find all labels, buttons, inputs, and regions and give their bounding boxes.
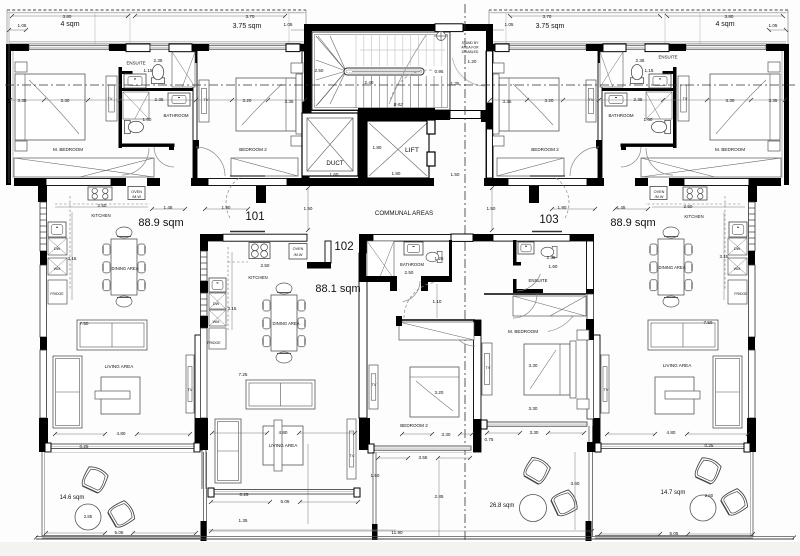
svg-text:1.50: 1.50 <box>371 473 380 478</box>
svg-text:1.20: 1.20 <box>468 59 477 64</box>
svg-text:BEDROOM 2: BEDROOM 2 <box>239 147 267 152</box>
svg-text:101: 101 <box>245 211 264 223</box>
svg-text:0.25: 0.25 <box>240 492 249 497</box>
svg-text:4 sqm: 4 sqm <box>715 21 734 28</box>
svg-text:0.25: 0.25 <box>80 444 89 449</box>
svg-text:WM: WM <box>54 267 61 271</box>
svg-text:2.50: 2.50 <box>315 68 324 73</box>
svg-text:103: 103 <box>539 214 558 226</box>
svg-text:3.75 sqm: 3.75 sqm <box>233 23 262 30</box>
svg-text:3.75 sqm: 3.75 sqm <box>536 23 565 30</box>
svg-text:LIVING AREA: LIVING AREA <box>269 443 299 448</box>
svg-text:2.50: 2.50 <box>684 204 693 209</box>
svg-text:2.35: 2.35 <box>154 58 163 63</box>
svg-text:BATHROOM: BATHROOM <box>163 113 188 118</box>
svg-text:1.60: 1.60 <box>330 172 339 177</box>
svg-text:11.90: 11.90 <box>391 530 403 535</box>
svg-text:M. BEDROOM: M. BEDROOM <box>53 147 83 152</box>
svg-text:5.05: 5.05 <box>670 531 679 536</box>
svg-text:3.35: 3.35 <box>503 99 512 104</box>
svg-text:DUCT: DUCT <box>326 160 343 167</box>
svg-text:1.05: 1.05 <box>284 22 293 27</box>
svg-text:3.35: 3.35 <box>18 98 27 103</box>
svg-text:14.7 sqm: 14.7 sqm <box>661 490 686 496</box>
svg-text:3.15: 3.15 <box>720 254 729 259</box>
svg-text:2.50: 2.50 <box>405 270 414 275</box>
svg-text:0.95: 0.95 <box>435 69 444 74</box>
svg-text:OVEN: OVEN <box>131 190 142 194</box>
svg-text:BEDROOM 2: BEDROOM 2 <box>400 423 428 428</box>
svg-text:4.80: 4.80 <box>667 430 676 435</box>
svg-text:3.15: 3.15 <box>228 306 237 311</box>
svg-text:7.50: 7.50 <box>704 320 713 325</box>
svg-text:DINING AREA: DINING AREA <box>112 266 139 271</box>
svg-text:3.20: 3.20 <box>435 390 444 395</box>
svg-text:2.85: 2.85 <box>84 514 93 519</box>
svg-text:1.15: 1.15 <box>144 68 153 73</box>
svg-text:B-02: B-02 <box>394 102 404 107</box>
svg-text:WM: WM <box>213 320 220 324</box>
svg-text:3.30: 3.30 <box>442 432 451 437</box>
svg-text:DINING AREA: DINING AREA <box>273 321 300 326</box>
svg-text:1.50: 1.50 <box>304 206 313 211</box>
svg-text:DW: DW <box>54 247 61 251</box>
svg-text:88.9 sqm: 88.9 sqm <box>610 217 655 229</box>
svg-text:TV: TV <box>683 97 688 101</box>
svg-text:LIVING AREA: LIVING AREA <box>105 364 135 369</box>
svg-text:1.45: 1.45 <box>617 205 626 210</box>
svg-text:BATHROOM: BATHROOM <box>608 113 633 118</box>
svg-text:3.30: 3.30 <box>530 430 539 435</box>
svg-text:FRIDGE: FRIDGE <box>734 292 748 296</box>
svg-text:1.35: 1.35 <box>451 81 460 86</box>
svg-text:3.20: 3.20 <box>243 98 252 103</box>
svg-text:3.80: 3.80 <box>63 14 72 19</box>
svg-text:WM: WM <box>734 267 741 271</box>
svg-text:5.05: 5.05 <box>281 499 290 504</box>
svg-text:3.70: 3.70 <box>246 14 255 19</box>
svg-text:2.35: 2.35 <box>547 255 556 260</box>
svg-text:1.05: 1.05 <box>505 22 514 27</box>
svg-text:2.35: 2.35 <box>636 58 645 63</box>
svg-text:TV: TV <box>486 366 491 370</box>
svg-text:7.25: 7.25 <box>239 372 248 377</box>
svg-text:OVEN: OVEN <box>293 247 304 251</box>
svg-text:3.30: 3.30 <box>529 363 538 368</box>
svg-text:/M.W: /M.W <box>294 253 303 257</box>
svg-text:ENSUITE: ENSUITE <box>658 55 677 60</box>
svg-text:1.05: 1.05 <box>18 23 27 28</box>
svg-text:1.60: 1.60 <box>644 117 653 122</box>
svg-text:TV: TV <box>372 383 377 387</box>
svg-text:1.50: 1.50 <box>487 206 496 211</box>
svg-text:BEDROOM 2: BEDROOM 2 <box>531 147 559 152</box>
svg-text:M. BEDROOM: M. BEDROOM <box>508 329 538 334</box>
svg-text:2.60: 2.60 <box>705 493 714 498</box>
svg-text:1.05: 1.05 <box>769 23 778 28</box>
svg-text:KITCHEN: KITCHEN <box>91 213 110 218</box>
svg-text:M. BEDROOM: M. BEDROOM <box>715 147 745 152</box>
svg-text:OVEN: OVEN <box>654 190 665 194</box>
svg-text:1.50: 1.50 <box>451 172 460 177</box>
svg-text:LIVING AREA: LIVING AREA <box>663 363 693 368</box>
svg-text:DW: DW <box>213 302 220 306</box>
svg-text:KITCHEN: KITCHEN <box>248 275 267 280</box>
svg-text:4.80: 4.80 <box>117 431 126 436</box>
svg-text:1.35: 1.35 <box>239 518 248 523</box>
svg-text:FRIDGE: FRIDGE <box>207 341 221 345</box>
svg-text:/M.W: /M.W <box>655 195 664 199</box>
svg-text:1.45: 1.45 <box>164 205 173 210</box>
svg-text:7.50: 7.50 <box>80 321 89 326</box>
svg-text:BATHROOM: BATHROOM <box>400 262 424 267</box>
svg-text:88.9 sqm: 88.9 sqm <box>138 217 183 229</box>
svg-text:2.50: 2.50 <box>261 263 270 268</box>
svg-text:LIFT: LIFT <box>405 147 419 154</box>
svg-text:3.15: 3.15 <box>68 256 77 261</box>
svg-text:ENSUITE: ENSUITE <box>126 61 145 66</box>
svg-text:3.70: 3.70 <box>543 14 552 19</box>
svg-text:3.30: 3.30 <box>61 98 70 103</box>
svg-text:1.80: 1.80 <box>373 145 382 150</box>
svg-text:1.90: 1.90 <box>558 205 567 210</box>
svg-text:1.90: 1.90 <box>222 205 231 210</box>
svg-text:DW: DW <box>734 247 741 251</box>
svg-text:COMMUNAL AREAS: COMMUNAL AREAS <box>375 210 433 217</box>
svg-text:3.30: 3.30 <box>726 98 735 103</box>
svg-text:DINING AREA: DINING AREA <box>659 265 686 270</box>
svg-text:2.40: 2.40 <box>365 80 374 85</box>
svg-text:1.25: 1.25 <box>435 256 444 261</box>
svg-text:TV: TV <box>188 388 193 392</box>
svg-text:2.35: 2.35 <box>634 97 643 102</box>
svg-text:1.60: 1.60 <box>549 264 558 269</box>
svg-text:3.30: 3.30 <box>529 406 538 411</box>
svg-text:DISABLED: DISABLED <box>462 50 479 54</box>
svg-text:3.35: 3.35 <box>769 98 778 103</box>
svg-text:KITCHEN: KITCHEN <box>684 214 703 219</box>
svg-text:1.10: 1.10 <box>433 299 442 304</box>
svg-text:TV: TV <box>350 454 355 458</box>
svg-text:0.25: 0.25 <box>705 443 714 448</box>
svg-text:TV: TV <box>204 98 209 102</box>
svg-text:2.35: 2.35 <box>155 97 164 102</box>
svg-text:0.75: 0.75 <box>485 437 494 442</box>
svg-text:1.80: 1.80 <box>392 171 401 176</box>
svg-text:3.20: 3.20 <box>545 98 554 103</box>
svg-text:1.60: 1.60 <box>143 117 152 122</box>
svg-text:TV: TV <box>604 388 609 392</box>
svg-text:2.50: 2.50 <box>98 203 107 208</box>
svg-text:4.80: 4.80 <box>279 430 288 435</box>
svg-text:/M.W: /M.W <box>132 195 141 199</box>
svg-text:TV: TV <box>589 98 594 102</box>
svg-text:26.8 sqm: 26.8 sqm <box>490 503 515 509</box>
svg-text:1.15: 1.15 <box>645 68 654 73</box>
svg-text:5.05: 5.05 <box>115 530 124 535</box>
svg-text:3.35: 3.35 <box>285 99 294 104</box>
svg-text:88.1 sqm: 88.1 sqm <box>315 283 360 295</box>
svg-text:3.55: 3.55 <box>419 455 428 460</box>
svg-text:102: 102 <box>334 241 353 253</box>
svg-text:AREA FOR: AREA FOR <box>461 46 479 50</box>
svg-text:TV: TV <box>108 97 113 101</box>
svg-text:FRIDGE: FRIDGE <box>50 292 64 296</box>
svg-text:ENSUITE: ENSUITE <box>528 278 547 283</box>
svg-text:4 sqm: 4 sqm <box>60 21 79 28</box>
svg-text:3.80: 3.80 <box>725 14 734 19</box>
svg-text:STAND BY: STAND BY <box>462 41 479 45</box>
svg-text:14.6 sqm: 14.6 sqm <box>60 495 85 501</box>
